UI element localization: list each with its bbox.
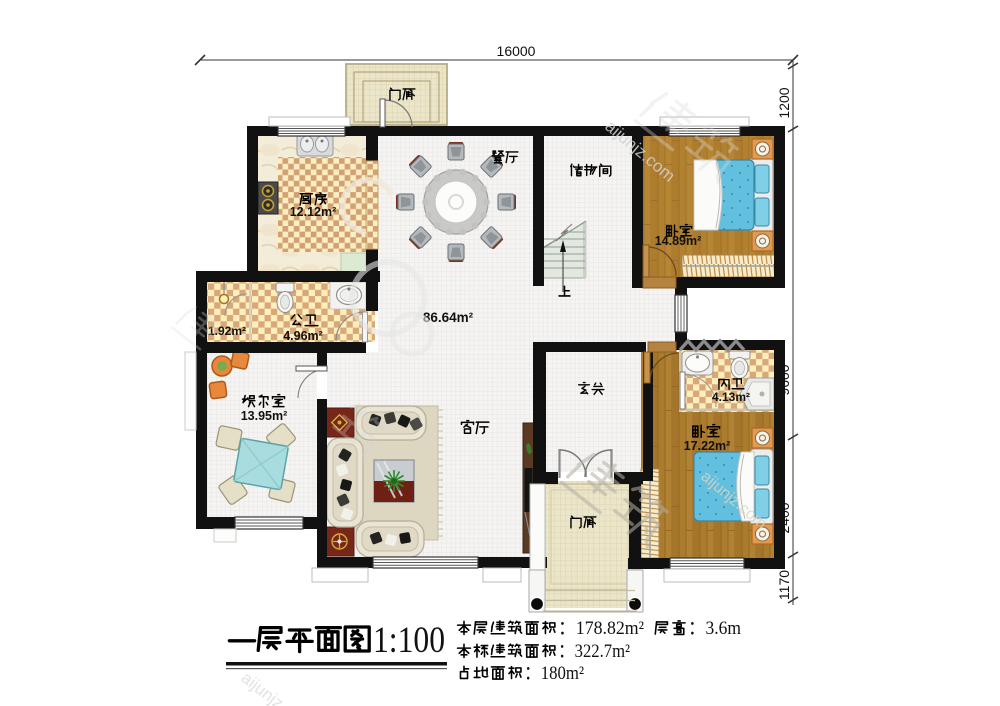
- svg-text:12.12m²: 12.12m²: [290, 205, 337, 219]
- svg-text:：322.7m²: ：322.7m²: [558, 641, 630, 662]
- svg-text:14.89m²: 14.89m²: [655, 234, 702, 248]
- svg-text:：3.6m: ：3.6m: [688, 618, 741, 639]
- svg-text:17.22m²: 17.22m²: [684, 439, 731, 453]
- svg-text:4.13m²: 4.13m²: [712, 390, 750, 404]
- svg-text:13.95m²: 13.95m²: [241, 409, 288, 423]
- svg-text:4.96m²: 4.96m²: [283, 329, 323, 343]
- svg-text:2400: 2400: [776, 502, 792, 533]
- svg-text:：178.82m²: ：178.82m²: [558, 618, 644, 639]
- svg-text:1:100: 1:100: [373, 620, 445, 661]
- svg-text:1200: 1200: [776, 87, 792, 118]
- svg-text:1.92m²: 1.92m²: [208, 324, 246, 338]
- svg-text:9600: 9600: [776, 364, 792, 395]
- svg-text:16000: 16000: [497, 43, 536, 59]
- svg-text:1170: 1170: [776, 570, 792, 600]
- svg-text:：180m²: ：180m²: [524, 663, 584, 684]
